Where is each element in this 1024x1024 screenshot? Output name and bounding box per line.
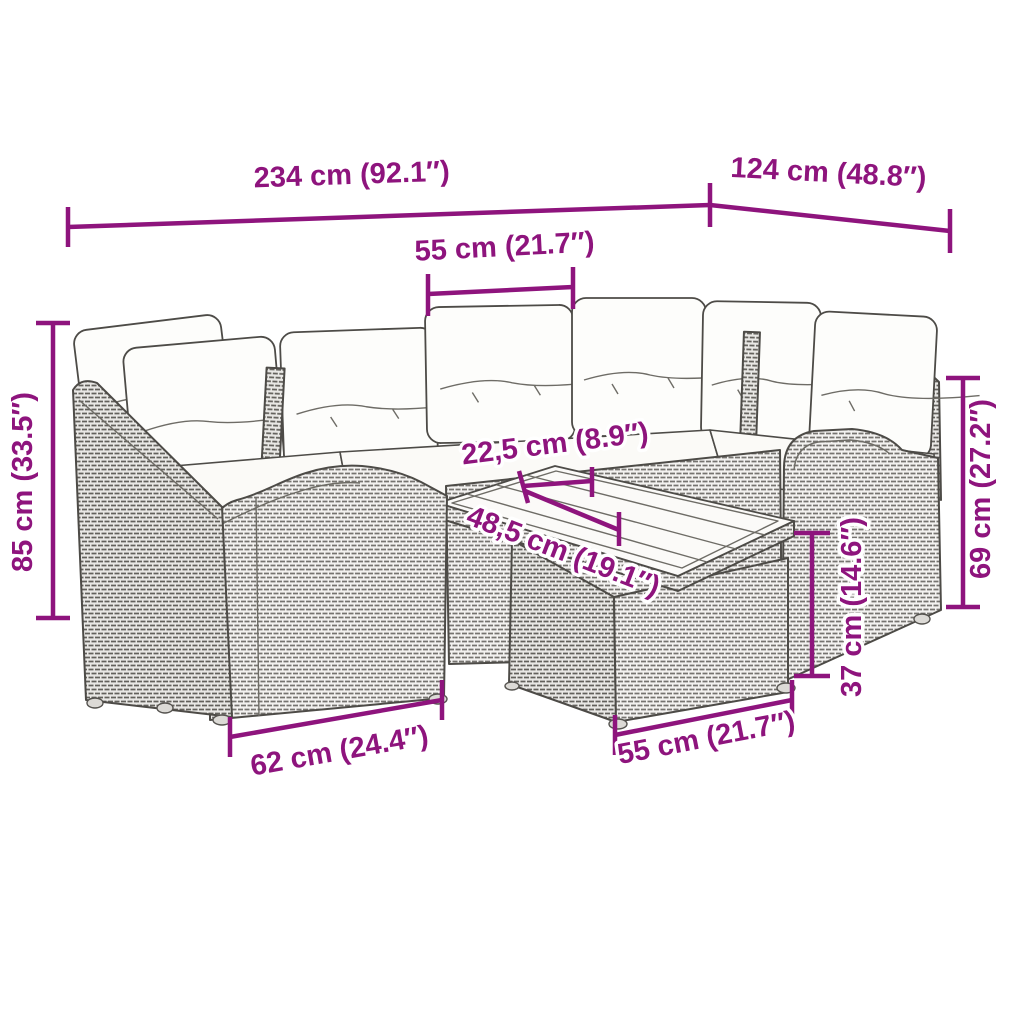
back-frame-post: [261, 368, 284, 469]
left-module: [210, 466, 447, 720]
dim-line-total-depth: [710, 205, 950, 253]
label-total-width: 234 cm (92.1″): [253, 156, 450, 195]
dim-line-total-width: [68, 183, 710, 247]
label-table-height: 37 cm (14.6″): [836, 517, 868, 697]
label-seat-width-top: 55 cm (21.7″): [414, 226, 595, 267]
dimension-diagram: 234 cm (92.1″) 124 cm (48.8″) 55 cm (21.…: [0, 0, 1024, 1024]
diagram-canvas: 234 cm (92.1″) 124 cm (48.8″) 55 cm (21.…: [0, 0, 1024, 1024]
dim-line-total-height: [36, 323, 70, 618]
back-frame-post: [740, 332, 760, 444]
label-backrest-height: 69 cm (27.2″): [965, 399, 997, 579]
label-total-height: 85 cm (33.5″): [7, 392, 39, 572]
label-total-depth: 124 cm (48.8″): [730, 152, 927, 194]
